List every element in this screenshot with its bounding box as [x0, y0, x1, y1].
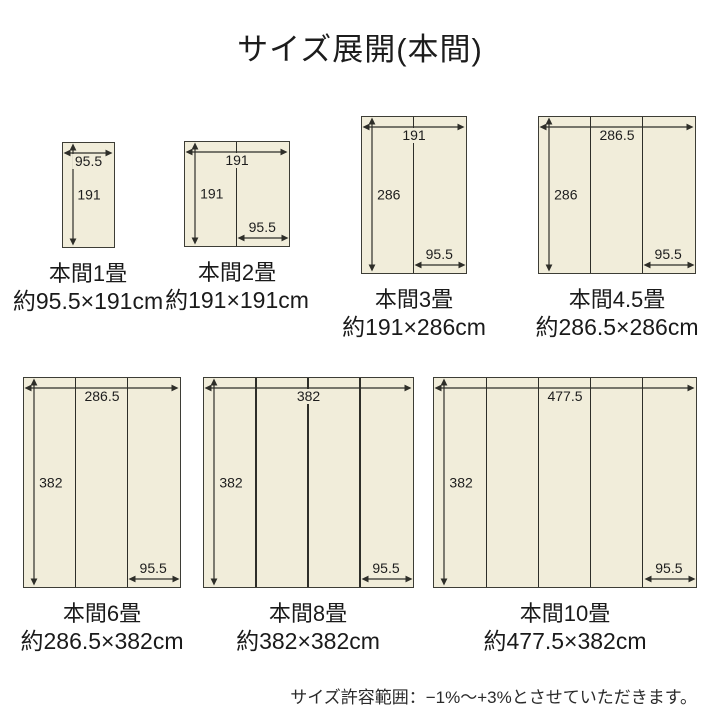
mat-divider: [75, 378, 76, 587]
panel-width-label: 95.5: [652, 561, 685, 576]
width-label: 286.5: [596, 128, 637, 143]
diagram-size: 約191×191cm: [165, 286, 309, 314]
diagram-honma-1jo: 95.5191: [62, 142, 115, 248]
width-label: 95.5: [72, 154, 105, 169]
mat-divider: [307, 378, 308, 587]
panel-width-label: 95.5: [137, 561, 170, 576]
diagram-name: 本間6畳: [20, 601, 183, 627]
width-label: 382: [294, 389, 323, 404]
diagram-name: 本間3畳: [342, 287, 486, 313]
diagram-name: 本間8畳: [236, 601, 380, 627]
mat-divider: [590, 378, 591, 587]
diagram-honma-4-5jo: 286.528695.5: [538, 116, 696, 274]
mat-divider: [590, 117, 591, 273]
diagram-caption-honma-8jo: 本間8畳約382×382cm: [236, 601, 380, 655]
diagram-honma-6jo: 286.538295.5: [23, 377, 181, 588]
diagram-size: 約286.5×382cm: [20, 627, 183, 655]
mat-divider: [359, 378, 360, 587]
diagram-size: 約191×286cm: [342, 313, 486, 341]
mat-divider: [642, 117, 643, 273]
diagram-caption-honma-1jo: 本間1畳約95.5×191cm: [13, 261, 163, 315]
diagram-size: 約95.5×191cm: [13, 287, 163, 315]
panel-width-label: 95.5: [369, 561, 402, 576]
diagram-caption-honma-10jo: 本間10畳約477.5×382cm: [483, 601, 646, 655]
width-label: 191: [399, 128, 428, 143]
width-label: 191: [222, 153, 251, 168]
mat-divider: [486, 378, 487, 587]
height-label: 382: [216, 475, 245, 490]
panel-width-label: 95.5: [423, 247, 456, 262]
panel-width-label: 95.5: [246, 220, 279, 235]
mat-divider: [538, 378, 539, 587]
width-label: 286.5: [81, 389, 122, 404]
height-label: 286: [374, 188, 403, 203]
width-label: 477.5: [544, 389, 585, 404]
diagram-name: 本間10畳: [483, 601, 646, 627]
tolerance-note: サイズ許容範囲：−1%～+3%とさせていただきます。: [290, 683, 697, 708]
height-label: 286: [551, 188, 580, 203]
height-label: 382: [446, 475, 475, 490]
size-chart-page: サイズ展開(本間) 95.5191本間1畳約95.5×191cm19119195…: [0, 0, 720, 720]
mat-divider: [127, 378, 128, 587]
diagram-honma-10jo: 477.538295.5: [433, 377, 697, 588]
diagram-honma-8jo: 38238295.5: [203, 377, 414, 588]
height-label: 191: [74, 188, 103, 203]
diagram-caption-honma-4-5jo: 本間4.5畳約286.5×286cm: [535, 287, 698, 341]
diagram-name: 本間4.5畳: [535, 287, 698, 313]
diagram-honma-2jo: 19119195.5: [184, 141, 290, 247]
diagram-size: 約477.5×382cm: [483, 627, 646, 655]
mat-divider: [642, 378, 643, 587]
diagram-honma-3jo: 19128695.5: [361, 116, 467, 274]
diagram-size: 約382×382cm: [236, 627, 380, 655]
mat-divider: [255, 378, 256, 587]
panel-width-label: 95.5: [652, 247, 685, 262]
diagram-area: 95.5191本間1畳約95.5×191cm19119195.5本間2畳約191…: [0, 0, 720, 720]
height-label: 382: [36, 475, 65, 490]
diagram-name: 本間1畳: [13, 261, 163, 287]
height-label: 191: [197, 187, 226, 202]
diagram-size: 約286.5×286cm: [535, 313, 698, 341]
diagram-caption-honma-6jo: 本間6畳約286.5×382cm: [20, 601, 183, 655]
diagram-caption-honma-3jo: 本間3畳約191×286cm: [342, 287, 486, 341]
diagram-caption-honma-2jo: 本間2畳約191×191cm: [165, 260, 309, 314]
diagram-name: 本間2畳: [165, 260, 309, 286]
